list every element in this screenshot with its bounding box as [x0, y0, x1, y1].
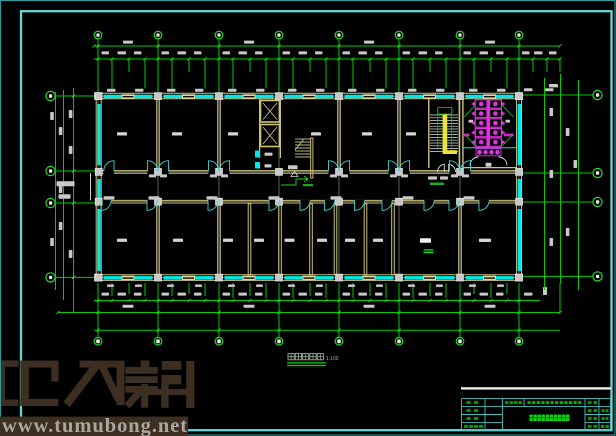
- svg-text:1:100: 1:100: [326, 356, 339, 362]
- svg-text:www.tumubong.net: www.tumubong.net: [2, 415, 188, 436]
